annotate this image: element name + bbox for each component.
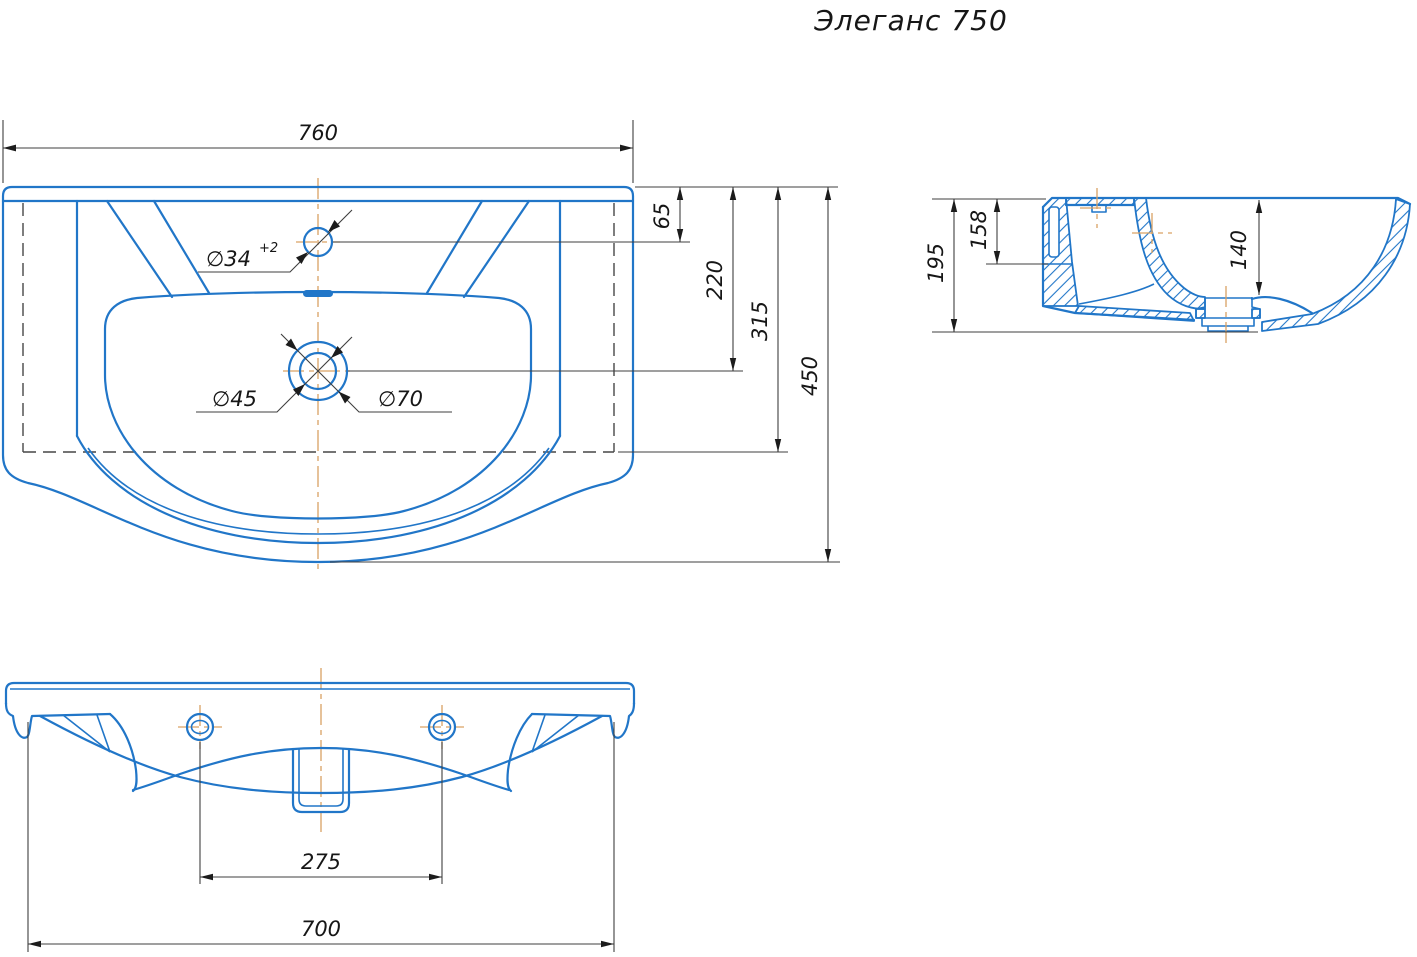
dim-140: 140: [1227, 230, 1251, 270]
dim-drain-dia: ∅45: [212, 387, 257, 411]
rib-right: [532, 715, 579, 752]
drain-flange-right: [1252, 309, 1260, 318]
top-view: [3, 178, 633, 574]
dim-220: 220: [703, 260, 727, 300]
dim-760: 760: [298, 121, 338, 145]
leader-drain-inner: ∅45: [196, 337, 352, 412]
leader-drain-recess: ∅70: [281, 334, 452, 412]
channel-bottom: [1079, 284, 1154, 304]
dim-158: 158: [967, 210, 991, 250]
dim-275: 275: [301, 850, 341, 874]
rim-hook-left: [6, 703, 110, 738]
basin-floor-right: [1252, 297, 1312, 313]
dim-faucet-tol: +2: [259, 241, 278, 256]
dim-315: 315: [748, 301, 772, 341]
bowl-front-wall-section: [1262, 199, 1410, 331]
drain-flange-left: [1196, 309, 1205, 318]
dim-faucet-dia: ∅34: [206, 247, 251, 271]
bowl-back-wall-section: [1134, 198, 1205, 309]
drawing-sheet: { "title": "Элеганс 750", "colors": { "l…: [0, 0, 1417, 957]
rim-bar: [6, 683, 634, 704]
leader-faucet-hole: ∅34 +2: [198, 210, 352, 272]
dim-195: 195: [924, 243, 948, 283]
rim-hook-right: [532, 703, 634, 738]
front-view: [6, 668, 634, 832]
dim-450: 450: [798, 356, 822, 396]
dim-drain-recess-dia: ∅70: [378, 387, 423, 411]
drawing-canvas: 760 65 220 315 450 ∅34 +2 ∅45: [0, 0, 1417, 957]
dim-65: 65: [650, 203, 674, 230]
mounting-slot: [1049, 207, 1059, 257]
overflow-slot: [303, 290, 333, 297]
ext-lines-right: [330, 187, 840, 562]
dim-700: 700: [301, 917, 341, 941]
rib-left: [63, 715, 110, 752]
